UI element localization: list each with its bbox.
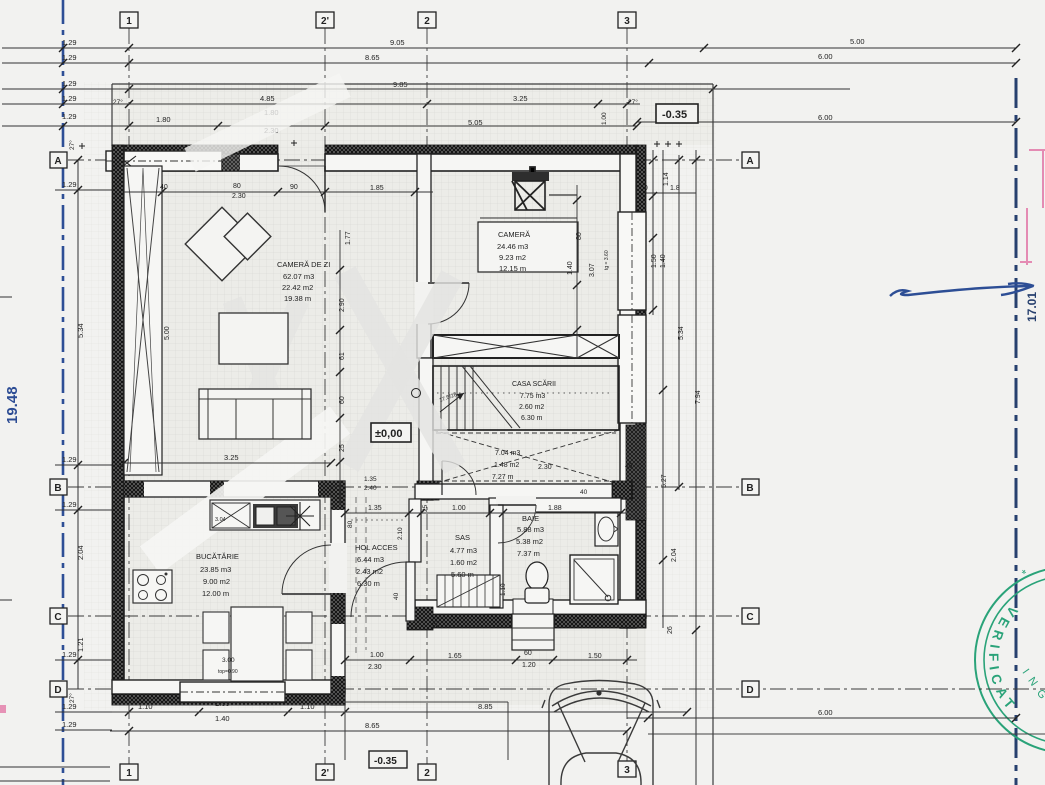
svg-text:1.29: 1.29	[62, 720, 77, 729]
svg-text:C: C	[746, 612, 753, 623]
svg-text:1.29: 1.29	[62, 180, 77, 189]
svg-text:9.05: 9.05	[390, 38, 405, 47]
svg-text:80: 80	[233, 183, 241, 190]
svg-text:5.05: 5.05	[468, 118, 483, 127]
svg-text:1: 1	[126, 768, 132, 779]
svg-text:1.88: 1.88	[548, 505, 562, 512]
svg-text:CAMERĂ: CAMERĂ	[498, 230, 530, 239]
svg-text:19.38 m: 19.38 m	[284, 294, 311, 303]
svg-text:B: B	[746, 483, 753, 494]
svg-text:2.60 m2: 2.60 m2	[519, 404, 544, 411]
svg-text:1.85: 1.85	[370, 185, 384, 192]
svg-text:6.00: 6.00	[818, 708, 833, 717]
svg-text:8.65: 8.65	[365, 53, 380, 62]
svg-text:A: A	[54, 156, 61, 167]
svg-text:2: 2	[424, 768, 430, 779]
svg-text:1.29: 1.29	[62, 79, 77, 88]
svg-text:1.10: 1.10	[500, 583, 507, 596]
svg-text:BAIE: BAIE	[522, 514, 539, 523]
svg-text:-0.35: -0.35	[374, 756, 397, 767]
svg-text:D: D	[746, 685, 753, 696]
svg-text:2.30: 2.30	[538, 464, 552, 471]
svg-text:1.14: 1.14	[663, 172, 670, 186]
svg-text:SAS: SAS	[455, 533, 470, 542]
svg-text:3.04: 3.04	[215, 517, 226, 523]
svg-text:2.10: 2.10	[397, 527, 404, 540]
svg-text:1.29: 1.29	[62, 650, 77, 659]
svg-text:1.29: 1.29	[62, 38, 77, 47]
svg-text:26: 26	[667, 626, 674, 634]
svg-text:57: 57	[592, 616, 600, 623]
svg-text:40: 40	[393, 592, 400, 600]
svg-text:22.42 m2: 22.42 m2	[282, 283, 313, 292]
svg-text:3.25: 3.25	[513, 94, 528, 103]
svg-text:1.50: 1.50	[588, 653, 602, 660]
svg-text:80: 80	[347, 520, 354, 528]
svg-text:7.94: 7.94	[695, 390, 702, 404]
svg-text:8.85: 8.85	[478, 702, 493, 711]
svg-text:60: 60	[339, 396, 346, 404]
svg-text:1.40: 1.40	[660, 254, 667, 268]
svg-text:62.07 m3: 62.07 m3	[283, 272, 314, 281]
svg-text:5.00: 5.00	[164, 326, 171, 340]
svg-text:3.25: 3.25	[224, 453, 239, 462]
svg-text:2: 2	[424, 16, 430, 27]
svg-text:D: D	[54, 685, 61, 696]
svg-text:1.29: 1.29	[62, 455, 77, 464]
svg-text:6.30 m: 6.30 m	[521, 415, 543, 422]
svg-text:1.40: 1.40	[567, 261, 574, 275]
svg-text:23.85 m3: 23.85 m3	[200, 565, 231, 574]
svg-text:27°: 27°	[68, 693, 76, 703]
svg-text:2': 2'	[321, 768, 329, 779]
svg-text:9.00 m2: 9.00 m2	[203, 577, 230, 586]
svg-text:1.40: 1.40	[215, 714, 230, 723]
svg-text:1.29: 1.29	[62, 112, 77, 121]
svg-text:4.77 m3: 4.77 m3	[450, 546, 477, 555]
svg-text:BUCĂTĂRIE: BUCĂTĂRIE	[196, 552, 239, 561]
svg-text:2': 2'	[321, 16, 329, 27]
svg-text:2.30: 2.30	[232, 193, 246, 200]
svg-text:7.04 m3: 7.04 m3	[495, 450, 520, 457]
svg-text:3.07: 3.07	[589, 263, 596, 277]
svg-text:-0.35: -0.35	[662, 109, 687, 121]
svg-text:2.04: 2.04	[671, 548, 678, 562]
svg-text:3.00: 3.00	[222, 657, 235, 664]
svg-text:5.27: 5.27	[661, 474, 668, 488]
svg-text:19.48: 19.48	[4, 386, 21, 424]
svg-text:1.48 m2: 1.48 m2	[494, 462, 519, 469]
svg-text:24.46 m3: 24.46 m3	[497, 242, 528, 251]
svg-text:1.80: 1.80	[156, 115, 171, 124]
svg-text:B: B	[54, 483, 61, 494]
svg-text:27°: 27°	[68, 140, 76, 150]
svg-text:A: A	[746, 156, 753, 167]
svg-text:6.30 m: 6.30 m	[357, 579, 380, 588]
svg-text:90: 90	[433, 620, 440, 628]
svg-text:80: 80	[576, 232, 583, 240]
svg-text:27°: 27°	[628, 98, 638, 106]
svg-text:1.20: 1.20	[522, 662, 536, 669]
svg-text:4.85: 4.85	[260, 94, 275, 103]
svg-text:60: 60	[524, 650, 532, 657]
svg-text:1.35: 1.35	[364, 476, 377, 483]
svg-text:6.44 m3: 6.44 m3	[357, 555, 384, 564]
svg-text:1.29: 1.29	[62, 500, 77, 509]
svg-text:1.35: 1.35	[368, 505, 382, 512]
svg-text:40: 40	[625, 463, 633, 470]
svg-text:1.8: 1.8	[670, 185, 680, 192]
svg-text:1.77: 1.77	[345, 231, 352, 245]
svg-text:2.43 m2: 2.43 m2	[356, 567, 383, 576]
svg-text:5.34: 5.34	[76, 323, 85, 338]
svg-text:17.01: 17.01	[1025, 292, 1039, 322]
svg-text:1.65: 1.65	[448, 653, 462, 660]
svg-text:9.23 m2: 9.23 m2	[499, 253, 526, 262]
svg-text:12.00 m: 12.00 m	[202, 589, 229, 598]
svg-text:HOL ACCES: HOL ACCES	[355, 543, 398, 552]
svg-text:40: 40	[160, 184, 168, 191]
svg-text:1: 1	[126, 16, 132, 27]
svg-text:2.90: 2.90	[339, 298, 346, 312]
svg-text:27°: 27°	[113, 98, 123, 106]
svg-text:3: 3	[624, 765, 630, 776]
svg-text:5.00: 5.00	[850, 37, 865, 46]
svg-text:1.21: 1.21	[76, 637, 85, 652]
svg-text:1.00: 1.00	[601, 112, 608, 125]
svg-text:2.04: 2.04	[76, 545, 85, 560]
svg-text:1.60 m2: 1.60 m2	[450, 558, 477, 567]
svg-text:5.38 m2: 5.38 m2	[516, 537, 543, 546]
svg-text:CAMERĂ DE ZI: CAMERĂ DE ZI	[277, 260, 330, 269]
svg-text:1.00: 1.00	[370, 652, 384, 659]
svg-text:1.50: 1.50	[651, 254, 658, 268]
svg-text:1.00: 1.00	[452, 505, 466, 512]
svg-text:C: C	[54, 612, 61, 623]
svg-text:top=0.90: top=0.90	[218, 669, 238, 675]
svg-text:7.27 m: 7.27 m	[492, 474, 514, 481]
svg-text:1.29: 1.29	[62, 53, 77, 62]
svg-text:12.15 m: 12.15 m	[499, 264, 526, 273]
svg-text:7.75 m3: 7.75 m3	[520, 393, 545, 400]
svg-text:6.00: 6.00	[818, 52, 833, 61]
svg-text:25: 25	[339, 444, 346, 452]
svg-text:25: 25	[422, 504, 429, 512]
svg-text:5.88 m3: 5.88 m3	[517, 525, 544, 534]
svg-text:5.34: 5.34	[678, 326, 685, 340]
svg-text:2.30: 2.30	[368, 664, 382, 671]
svg-text:40: 40	[580, 489, 588, 496]
svg-text:tg = 3.60: tg = 3.60	[604, 250, 610, 270]
svg-text:90: 90	[290, 184, 298, 191]
svg-text:61: 61	[339, 352, 346, 360]
svg-text:5.60 m: 5.60 m	[451, 570, 474, 579]
svg-text:3: 3	[624, 16, 630, 27]
svg-text:1.29: 1.29	[62, 94, 77, 103]
svg-text:±0,00: ±0,00	[375, 428, 402, 440]
svg-text:8.65: 8.65	[365, 721, 380, 730]
svg-text:7.37 m: 7.37 m	[517, 549, 540, 558]
svg-text:2.40: 2.40	[364, 485, 377, 492]
svg-text:CASA SCĂRII: CASA SCĂRII	[512, 379, 556, 388]
svg-text:6.00: 6.00	[818, 113, 833, 122]
